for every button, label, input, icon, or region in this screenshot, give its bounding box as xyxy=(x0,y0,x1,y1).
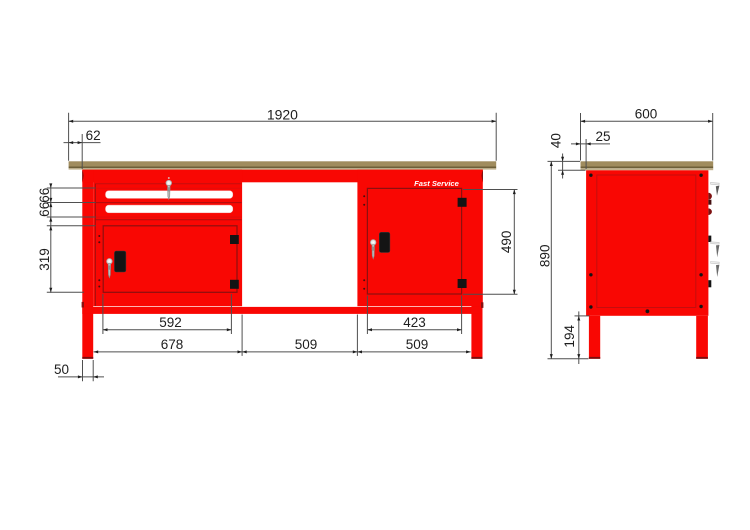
svg-text:678: 678 xyxy=(161,337,184,352)
svg-text:600: 600 xyxy=(635,107,658,122)
svg-text:194: 194 xyxy=(562,325,577,348)
svg-text:50: 50 xyxy=(54,362,69,377)
svg-text:592: 592 xyxy=(159,315,182,330)
svg-text:Fast Service: Fast Service xyxy=(414,179,460,188)
svg-text:66: 66 xyxy=(37,202,52,217)
svg-text:319: 319 xyxy=(37,248,52,271)
svg-text:1920: 1920 xyxy=(267,106,298,122)
svg-text:490: 490 xyxy=(499,231,514,254)
svg-text:890: 890 xyxy=(538,245,553,268)
svg-text:509: 509 xyxy=(406,337,429,352)
svg-text:509: 509 xyxy=(295,337,318,352)
svg-text:62: 62 xyxy=(86,128,101,143)
svg-text:40: 40 xyxy=(548,133,563,148)
svg-text:66: 66 xyxy=(37,188,52,203)
svg-text:423: 423 xyxy=(403,315,426,330)
svg-text:25: 25 xyxy=(595,129,610,144)
